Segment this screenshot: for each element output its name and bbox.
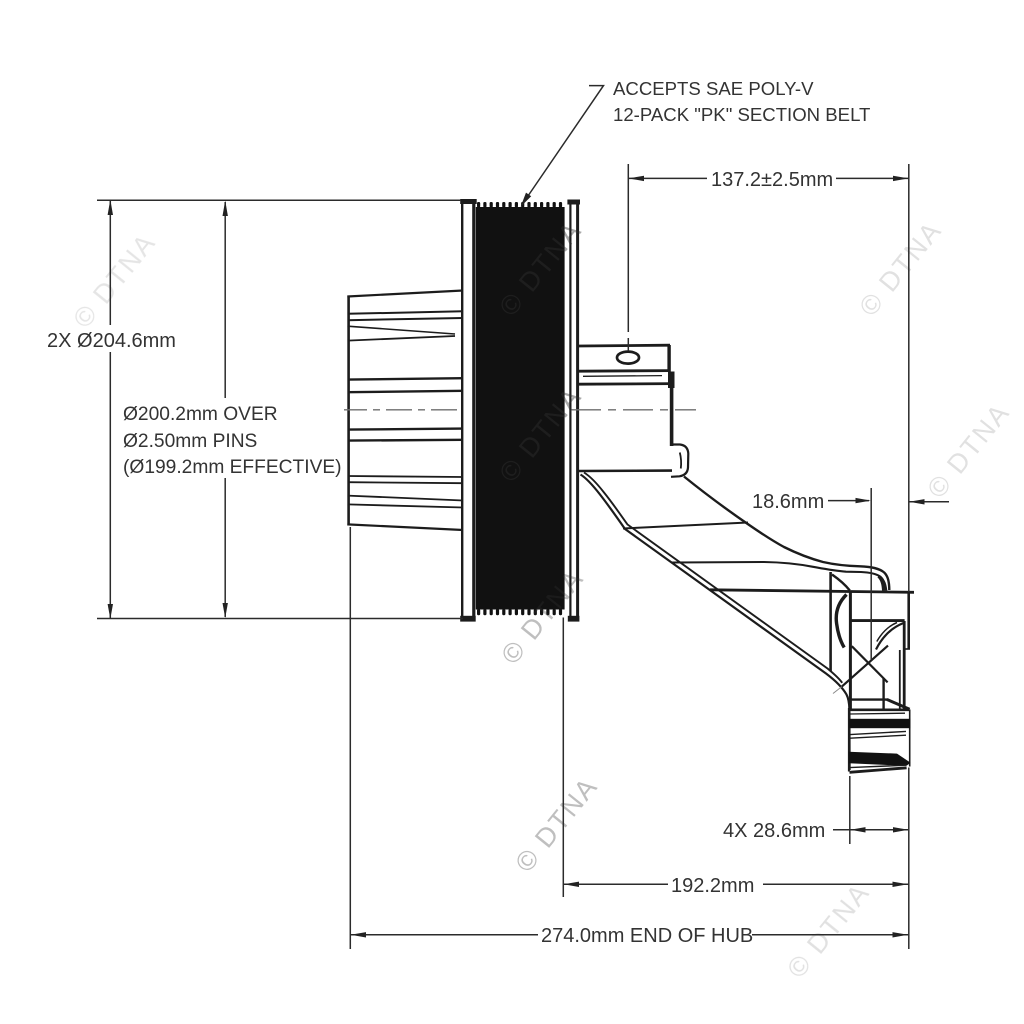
svg-text:© DTNA: © DTNA — [781, 877, 875, 984]
svg-text:© DTNA: © DTNA — [921, 397, 1015, 504]
svg-text:Ø200.2mm OVER: Ø200.2mm OVER — [123, 404, 278, 425]
svg-text:© DTNA: © DTNA — [67, 227, 161, 334]
svg-text:12-PACK "PK" SECTION BELT: 12-PACK "PK" SECTION BELT — [613, 104, 870, 125]
svg-text:© DTNA: © DTNA — [853, 215, 947, 322]
svg-text:2X Ø204.6mm: 2X Ø204.6mm — [47, 330, 176, 352]
svg-text:© DTNA: © DTNA — [509, 771, 603, 878]
svg-text:(Ø199.2mm EFFECTIVE): (Ø199.2mm EFFECTIVE) — [123, 457, 342, 478]
svg-text:137.2±2.5mm: 137.2±2.5mm — [711, 169, 833, 191]
svg-text:18.6mm: 18.6mm — [752, 491, 824, 513]
svg-text:Ø2.50mm PINS: Ø2.50mm PINS — [123, 431, 257, 452]
svg-text:ACCEPTS SAE POLY-V: ACCEPTS SAE POLY-V — [613, 78, 814, 99]
svg-text:274.0mm END OF HUB: 274.0mm END OF HUB — [541, 925, 753, 947]
svg-text:192.2mm: 192.2mm — [671, 875, 754, 897]
svg-text:4X 28.6mm: 4X 28.6mm — [723, 820, 825, 842]
